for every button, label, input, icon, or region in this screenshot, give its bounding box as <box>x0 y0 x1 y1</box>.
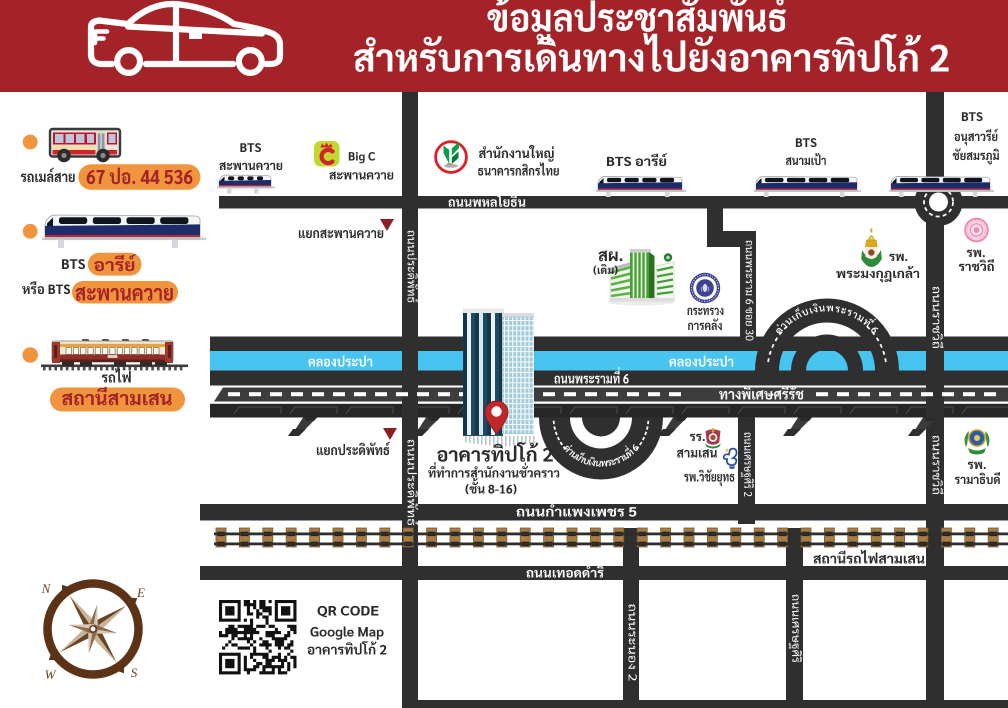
svg-text:N: N <box>41 581 52 596</box>
svg-text:W: W <box>45 667 57 682</box>
svg-text:S: S <box>131 665 138 680</box>
svg-text:E: E <box>136 585 145 600</box>
